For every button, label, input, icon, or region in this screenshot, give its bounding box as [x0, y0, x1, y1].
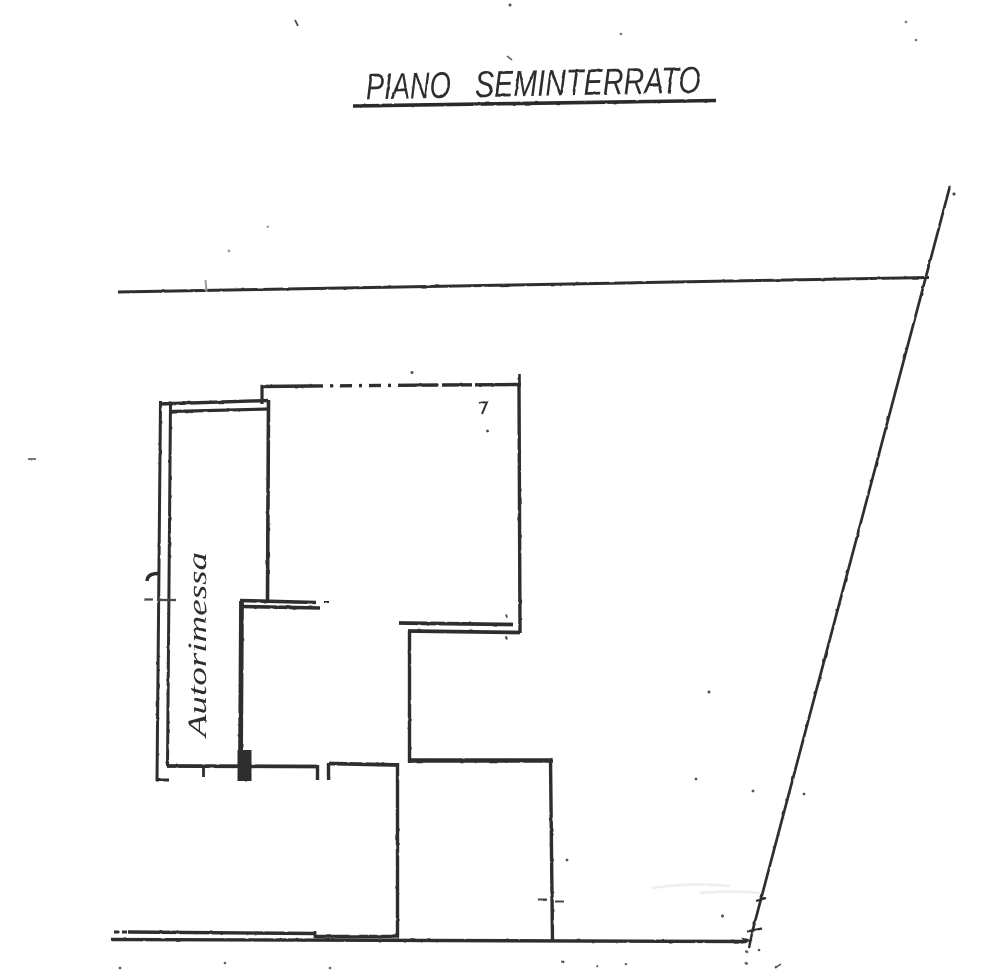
svg-text:Autorimessa: Autorimessa: [183, 552, 212, 740]
svg-text:PIANO: PIANO: [365, 65, 451, 108]
svg-text:SEMINTERRATO: SEMINTERRATO: [474, 59, 701, 105]
